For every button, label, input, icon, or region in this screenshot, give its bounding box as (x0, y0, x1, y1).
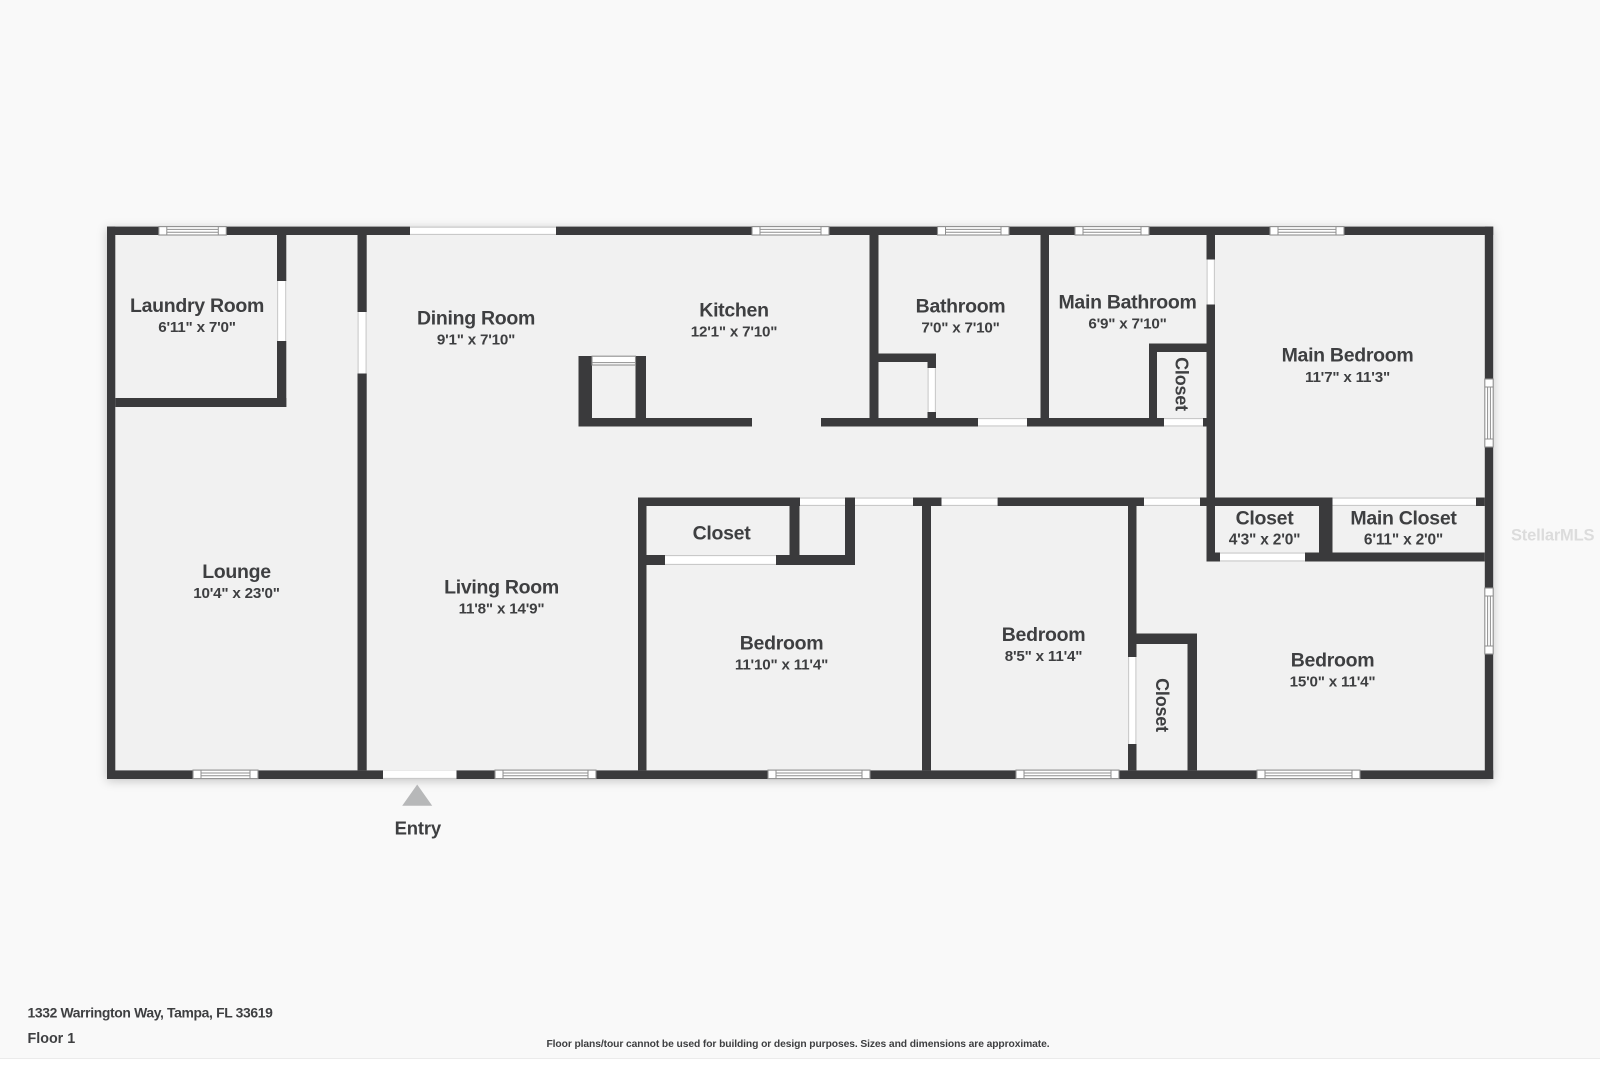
svg-text:Bathroom: Bathroom (916, 296, 1006, 318)
svg-text:Lounge: Lounge (202, 561, 271, 583)
svg-text:Main Bedroom: Main Bedroom (1282, 345, 1414, 367)
svg-text:6'11" x 7'0": 6'11" x 7'0" (158, 319, 236, 336)
svg-text:Closet: Closet (1172, 357, 1192, 411)
svg-text:8'5" x 11'4": 8'5" x 11'4" (1005, 648, 1083, 665)
svg-text:Laundry Room: Laundry Room (130, 295, 264, 317)
svg-text:1332 Warrington Way, Tampa, FL: 1332 Warrington Way, Tampa, FL 33619 (28, 1005, 274, 1021)
svg-text:15'0" x 11'4": 15'0" x 11'4" (1290, 673, 1376, 690)
svg-text:Entry: Entry (395, 818, 442, 839)
svg-text:10'4" x 23'0": 10'4" x 23'0" (193, 585, 280, 602)
svg-text:11'10" x 11'4": 11'10" x 11'4" (735, 656, 828, 673)
svg-text:Floor 1: Floor 1 (28, 1031, 76, 1047)
svg-text:Closet: Closet (1152, 678, 1172, 732)
svg-text:Dining Room: Dining Room (417, 308, 535, 330)
svg-text:Closet: Closet (1236, 508, 1295, 530)
svg-text:Living Room: Living Room (444, 577, 559, 599)
svg-text:Kitchen: Kitchen (699, 300, 768, 322)
svg-text:Main Closet: Main Closet (1350, 508, 1457, 530)
svg-text:Main Bathroom: Main Bathroom (1058, 292, 1196, 314)
svg-text:4'3" x 2'0": 4'3" x 2'0" (1229, 531, 1301, 548)
svg-text:Floor plans/tour cannot be use: Floor plans/tour cannot be used for buil… (546, 1039, 1049, 1050)
svg-text:11'8" x 14'9": 11'8" x 14'9" (459, 600, 545, 617)
svg-text:9'1" x 7'10": 9'1" x 7'10" (437, 331, 515, 348)
svg-text:6'9" x 7'10": 6'9" x 7'10" (1088, 315, 1166, 332)
svg-text:Bedroom: Bedroom (740, 633, 824, 655)
svg-text:Bedroom: Bedroom (1002, 624, 1086, 646)
svg-text:11'7" x 11'3": 11'7" x 11'3" (1305, 369, 1390, 386)
svg-text:Bedroom: Bedroom (1291, 650, 1375, 672)
svg-text:StellarMLS: StellarMLS (1511, 527, 1594, 545)
svg-text:Closet: Closet (693, 523, 752, 545)
svg-text:7'0" x 7'10": 7'0" x 7'10" (921, 319, 999, 336)
svg-text:12'1" x 7'10": 12'1" x 7'10" (691, 323, 778, 340)
svg-text:6'11" x 2'0": 6'11" x 2'0" (1364, 531, 1443, 548)
